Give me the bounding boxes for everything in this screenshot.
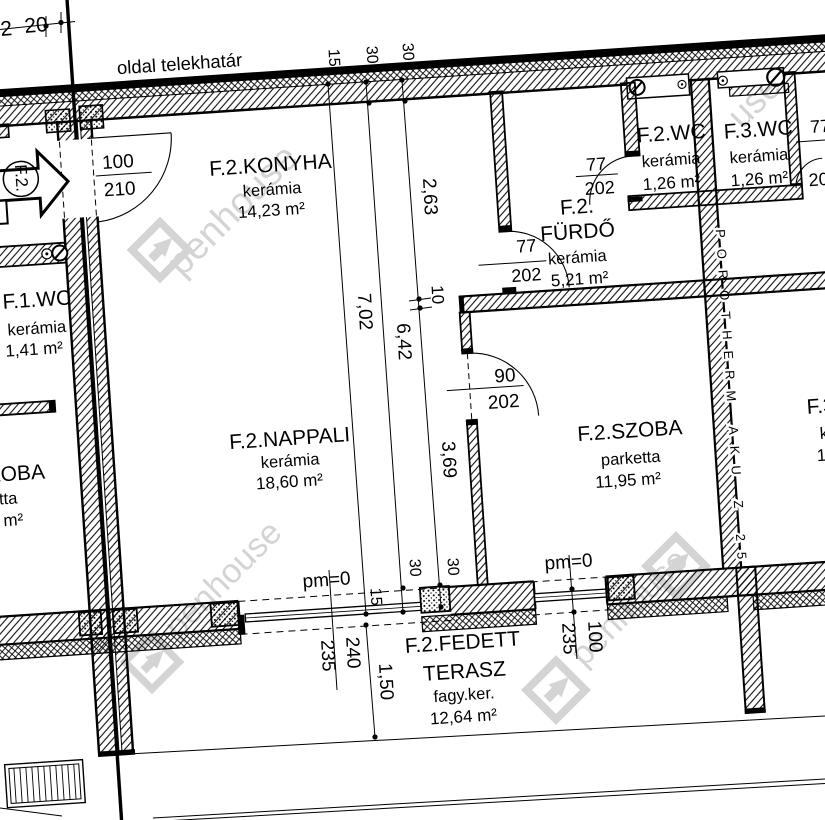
svg-text:100: 100 xyxy=(101,151,134,174)
svg-text:10: 10 xyxy=(428,285,448,305)
svg-text:202: 202 xyxy=(808,168,825,190)
svg-text:15: 15 xyxy=(325,48,343,67)
svg-text:90: 90 xyxy=(494,365,516,387)
svg-text:pm=0: pm=0 xyxy=(302,568,351,592)
svg-text:1,41 m²: 1,41 m² xyxy=(5,338,64,361)
svg-text:2: 2 xyxy=(0,17,13,41)
svg-text:77: 77 xyxy=(585,154,606,175)
svg-text:m²: m² xyxy=(3,510,24,530)
svg-text:30: 30 xyxy=(363,45,381,64)
svg-text:7,02: 7,02 xyxy=(353,293,376,331)
svg-text:pm=0: pm=0 xyxy=(544,550,593,574)
svg-text:100: 100 xyxy=(583,620,606,653)
svg-text:F.1.WC: F.1.WC xyxy=(2,286,72,314)
svg-text:11,: 11, xyxy=(816,445,825,465)
svg-text:202: 202 xyxy=(511,264,542,286)
svg-text:30: 30 xyxy=(399,42,417,61)
svg-text:F.3: F.3 xyxy=(806,394,825,419)
svg-text:F.2.: F.2. xyxy=(11,164,32,193)
svg-text:20: 20 xyxy=(23,13,48,38)
svg-text:3,69: 3,69 xyxy=(437,441,460,479)
svg-text:240: 240 xyxy=(341,636,364,669)
svg-text:2,63: 2,63 xyxy=(418,178,441,216)
svg-text:15: 15 xyxy=(367,587,385,606)
svg-text:F.3.WC: F.3.WC xyxy=(723,116,793,144)
svg-text:30: 30 xyxy=(406,558,424,577)
svg-text:210: 210 xyxy=(103,178,136,201)
svg-text:1,26 m²: 1,26 m² xyxy=(642,171,701,194)
svg-text:202: 202 xyxy=(584,177,615,199)
svg-text:235: 235 xyxy=(557,622,580,655)
svg-text:77: 77 xyxy=(516,235,537,256)
svg-text:6,42: 6,42 xyxy=(392,323,415,361)
svg-text:202: 202 xyxy=(487,391,520,414)
svg-text:ke: ke xyxy=(819,424,825,443)
svg-text:1,50: 1,50 xyxy=(374,663,397,701)
svg-text:77: 77 xyxy=(809,116,825,137)
svg-text:tta: tta xyxy=(0,489,19,508)
svg-text:30: 30 xyxy=(444,557,462,576)
svg-text:235: 235 xyxy=(316,639,339,672)
